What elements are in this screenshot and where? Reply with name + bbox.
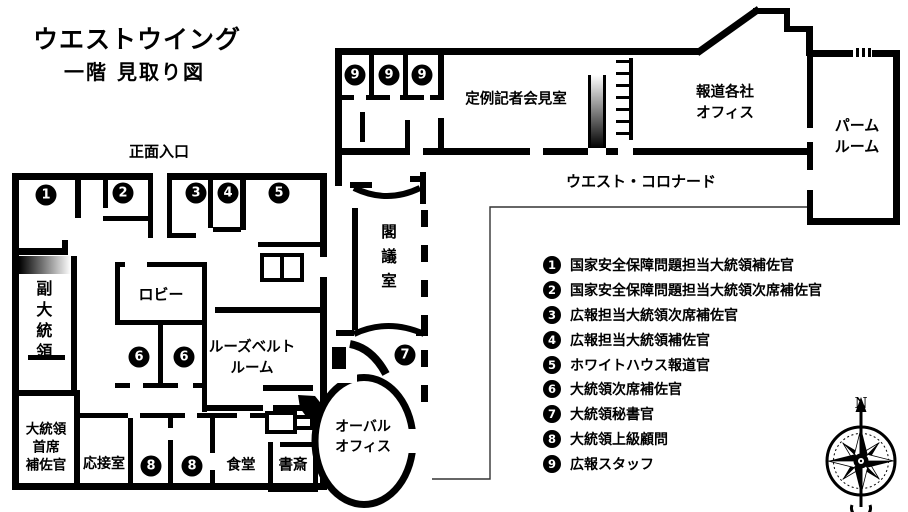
legend-badge: 8 xyxy=(543,430,561,448)
room-badge-9a: 9 xyxy=(345,65,366,86)
legend-item: 6大統領次席補佐官 xyxy=(543,377,883,402)
floor-plan-page: ウエストウイング 一階 見取り図 正面入口 副大統領 ロビー ルーズベルト ルー… xyxy=(0,0,908,512)
press-office-diagonal-wall xyxy=(700,11,756,51)
legend-label: ホワイトハウス報道官 xyxy=(570,355,710,375)
legend-item: 9広報スタッフ xyxy=(543,451,883,476)
legend-item: 2国家安全保障問題担当大統領次席補佐官 xyxy=(543,278,883,303)
label-palm-room: パーム ルーム xyxy=(835,116,880,159)
room-badge-8b: 8 xyxy=(182,456,203,477)
room-badge-4: 4 xyxy=(218,183,239,204)
page-title: ウエストウイング xyxy=(33,20,241,56)
label-oval-office: オーバル オフィス xyxy=(335,418,391,458)
legend-label: 大統領秘書官 xyxy=(570,404,654,424)
label-cabinet-room: 閣議室 xyxy=(377,223,399,297)
legend-badge: 7 xyxy=(543,405,561,423)
legend-label: 広報担当大統領次席補佐官 xyxy=(570,305,738,325)
legend-item: 5ホワイトハウス報道官 xyxy=(543,352,883,377)
label-press-offices: 報道各社 オフィス xyxy=(696,82,754,123)
legend-item: 3広報担当大統領次席補佐官 xyxy=(543,303,883,328)
label-vice-president: 副大統領 xyxy=(31,280,54,364)
cabinet-room-south-bay xyxy=(354,326,424,334)
room-badge-9c: 9 xyxy=(412,65,433,86)
legend-badge: 5 xyxy=(543,356,561,374)
room-badge-5: 5 xyxy=(269,183,290,204)
legend-label: 国家安全保障問題担当大統領補佐官 xyxy=(570,255,794,275)
legend-label: 広報担当大統領補佐官 xyxy=(570,330,710,350)
room-badge-6b: 6 xyxy=(174,347,195,368)
room-badge-1: 1 xyxy=(36,185,57,206)
label-reception-room: 応接室 xyxy=(83,455,125,475)
legend: 1国家安全保障問題担当大統領補佐官 2国家安全保障問題担当大統領次席補佐官 3広… xyxy=(543,253,883,476)
legend-label: 広報スタッフ xyxy=(570,454,654,474)
junction-curved-wall xyxy=(350,344,386,374)
west-stairs xyxy=(19,256,71,274)
legend-item: 4広報担当大統領補佐官 xyxy=(543,327,883,352)
room-badge-8a: 8 xyxy=(141,456,162,477)
legend-badge: 2 xyxy=(543,281,561,299)
label-roosevelt-room: ルーズベルト ルーム xyxy=(209,337,295,378)
label-study: 書斎 xyxy=(279,456,308,477)
legend-badge: 9 xyxy=(543,455,561,473)
label-front-entrance: 正面入口 xyxy=(129,141,189,162)
room-badge-7: 7 xyxy=(395,345,416,366)
page-subtitle: 一階 見取り図 xyxy=(64,56,205,85)
label-chief-of-staff: 大統領 首席 補佐官 xyxy=(26,421,67,476)
room-badge-9b: 9 xyxy=(379,65,400,86)
label-press-briefing-room: 定例記者会見室 xyxy=(465,90,567,111)
room-badge-2: 2 xyxy=(113,183,134,204)
legend-label: 大統領上級顧問 xyxy=(570,429,668,449)
legend-item: 1国家安全保障問題担当大統領補佐官 xyxy=(543,253,883,278)
cabinet-room-north-bay xyxy=(354,188,420,196)
room-badge-6a: 6 xyxy=(129,347,150,368)
legend-badge: 3 xyxy=(543,306,561,324)
legend-item: 8大統領上級顧問 xyxy=(543,427,883,452)
label-dining-room: 食堂 xyxy=(227,456,256,477)
legend-badge: 1 xyxy=(543,256,561,274)
legend-label: 大統領次席補佐官 xyxy=(570,379,682,399)
legend-item: 7大統領秘書官 xyxy=(543,402,883,427)
legend-badge: 4 xyxy=(543,331,561,349)
room-badge-3: 3 xyxy=(186,183,207,204)
label-west-colonnade: ウエスト・コロナード xyxy=(566,171,716,192)
legend-badge: 6 xyxy=(543,380,561,398)
press-stairs xyxy=(591,75,603,148)
legend-label: 国家安全保障問題担当大統領次席補佐官 xyxy=(570,280,822,300)
label-lobby: ロビー xyxy=(138,284,183,305)
